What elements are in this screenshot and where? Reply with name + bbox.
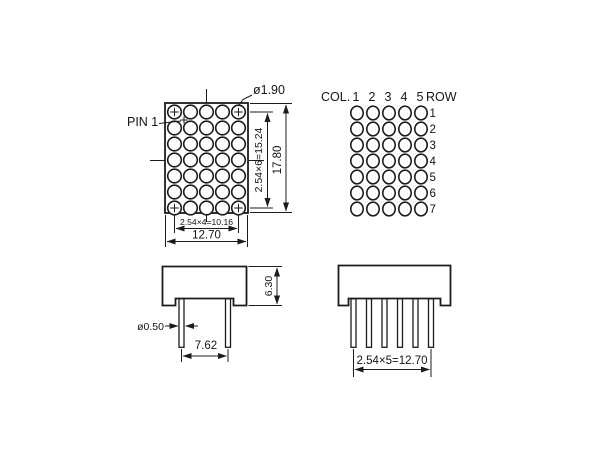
pattern-dot xyxy=(383,186,395,200)
led-dot xyxy=(232,153,246,167)
led-dot xyxy=(184,121,198,135)
datasheet-drawing: PIN 1 ø1.90 2.54×6=15.24 17.80 2.54×4=10… xyxy=(0,0,600,450)
pattern-dot xyxy=(399,154,411,168)
led-dot xyxy=(232,121,246,135)
pattern-dot xyxy=(351,154,363,168)
column-number-label: 2 xyxy=(369,90,376,104)
pattern-dot xyxy=(367,138,379,152)
led-dot xyxy=(216,185,230,199)
led-dot xyxy=(168,153,182,167)
col-pitch-dim: 2.54×4=10.16 xyxy=(180,217,233,227)
drawing-svg: PIN 1 ø1.90 2.54×6=15.24 17.80 2.54×4=10… xyxy=(0,0,600,450)
pattern-dot-grid xyxy=(351,106,427,216)
pin-row-view: 2.54×5=12.70 xyxy=(339,266,451,378)
led-dot xyxy=(232,137,246,151)
pattern-dot xyxy=(399,138,411,152)
led-dot xyxy=(184,201,198,215)
overall-height-dim: 17.80 xyxy=(272,146,284,175)
side-view: 6.30 ø0.50 7.62 xyxy=(137,267,282,363)
pattern-dot xyxy=(367,186,379,200)
component-pin xyxy=(226,299,231,348)
side-view-body xyxy=(163,267,247,306)
led-dot xyxy=(184,169,198,183)
row-number-label: 2 xyxy=(430,124,436,136)
pattern-dot xyxy=(399,122,411,136)
pattern-dot xyxy=(367,122,379,136)
led-dot xyxy=(216,137,230,151)
led-dot xyxy=(200,137,214,151)
led-dot xyxy=(184,105,198,119)
led-dot xyxy=(216,169,230,183)
row-number-label: 5 xyxy=(430,172,436,184)
pattern-dot xyxy=(399,202,411,216)
pin-pitch-dim: 7.62 xyxy=(195,340,217,352)
led-dot xyxy=(216,201,230,215)
pattern-dot xyxy=(351,138,363,152)
row-pitch-dim: 2.54×6=15.24 xyxy=(253,127,265,192)
row-number-label: 1 xyxy=(430,108,436,120)
pattern-dot xyxy=(415,170,427,184)
row-number-label: 6 xyxy=(430,188,436,200)
row-number-label: 7 xyxy=(430,204,436,216)
pattern-dot xyxy=(399,106,411,120)
pattern-dot xyxy=(383,170,395,184)
pattern-dot xyxy=(351,202,363,216)
component-pin xyxy=(429,299,434,348)
row-number-label: 4 xyxy=(430,156,437,168)
pattern-dot xyxy=(415,106,427,120)
led-dot xyxy=(200,201,214,215)
front-view: PIN 1 ø1.90 2.54×6=15.24 17.80 2.54×4=10… xyxy=(127,83,292,247)
pin-row-pins xyxy=(351,299,434,348)
col-header-label: COL. xyxy=(321,90,350,104)
row-header-label: ROW xyxy=(426,90,457,104)
pattern-dot xyxy=(367,106,379,120)
led-dot xyxy=(232,169,246,183)
column-number-label: 4 xyxy=(401,90,408,104)
pattern-dot xyxy=(415,202,427,216)
led-dot xyxy=(168,137,182,151)
pin1-label: PIN 1 xyxy=(127,115,158,129)
pattern-dot xyxy=(383,154,395,168)
pattern-dot xyxy=(399,170,411,184)
pin-diameter-label: ø0.50 xyxy=(137,321,164,333)
component-pin xyxy=(413,299,418,348)
pattern-dot xyxy=(351,106,363,120)
body-height-dim: 6.30 xyxy=(263,276,275,297)
led-dot xyxy=(168,169,182,183)
column-number-label: 1 xyxy=(353,90,360,104)
pattern-dot xyxy=(351,186,363,200)
pattern-dot xyxy=(351,170,363,184)
dot-diameter-label: ø1.90 xyxy=(253,83,285,97)
dot-pattern-view: COL. ROW 12345 1234567 xyxy=(321,90,457,216)
led-dot xyxy=(200,105,214,119)
component-pin xyxy=(351,299,356,348)
pin-span-dim: 2.54×5=12.70 xyxy=(357,355,428,367)
led-dot xyxy=(200,153,214,167)
column-number-label: 5 xyxy=(417,90,424,104)
pattern-dot xyxy=(383,138,395,152)
pattern-dot xyxy=(415,154,427,168)
column-number-labels: 12345 xyxy=(353,90,424,104)
pattern-dot xyxy=(399,186,411,200)
led-dot xyxy=(200,121,214,135)
pattern-dot xyxy=(351,122,363,136)
row-number-label: 3 xyxy=(430,140,436,152)
led-dot xyxy=(168,121,182,135)
component-pin xyxy=(179,299,184,348)
led-dot xyxy=(184,185,198,199)
led-dot xyxy=(184,137,198,151)
component-pin xyxy=(367,299,372,348)
led-dot xyxy=(168,185,182,199)
column-number-label: 3 xyxy=(385,90,392,104)
component-pin xyxy=(382,299,387,348)
pattern-dot xyxy=(383,202,395,216)
led-dot xyxy=(216,121,230,135)
led-dot xyxy=(232,185,246,199)
pattern-dot xyxy=(415,186,427,200)
overall-width-dim: 12.70 xyxy=(192,230,221,242)
pattern-dot xyxy=(367,170,379,184)
pattern-dot xyxy=(383,122,395,136)
component-pin xyxy=(398,299,403,348)
led-dot xyxy=(200,185,214,199)
pattern-dot xyxy=(415,138,427,152)
led-dot xyxy=(216,105,230,119)
pattern-dot xyxy=(367,202,379,216)
pattern-dot xyxy=(415,122,427,136)
led-dot xyxy=(216,153,230,167)
pattern-dot xyxy=(367,154,379,168)
led-dot xyxy=(200,169,214,183)
led-dot xyxy=(184,153,198,167)
row-number-labels: 1234567 xyxy=(430,108,437,216)
pattern-dot xyxy=(383,106,395,120)
